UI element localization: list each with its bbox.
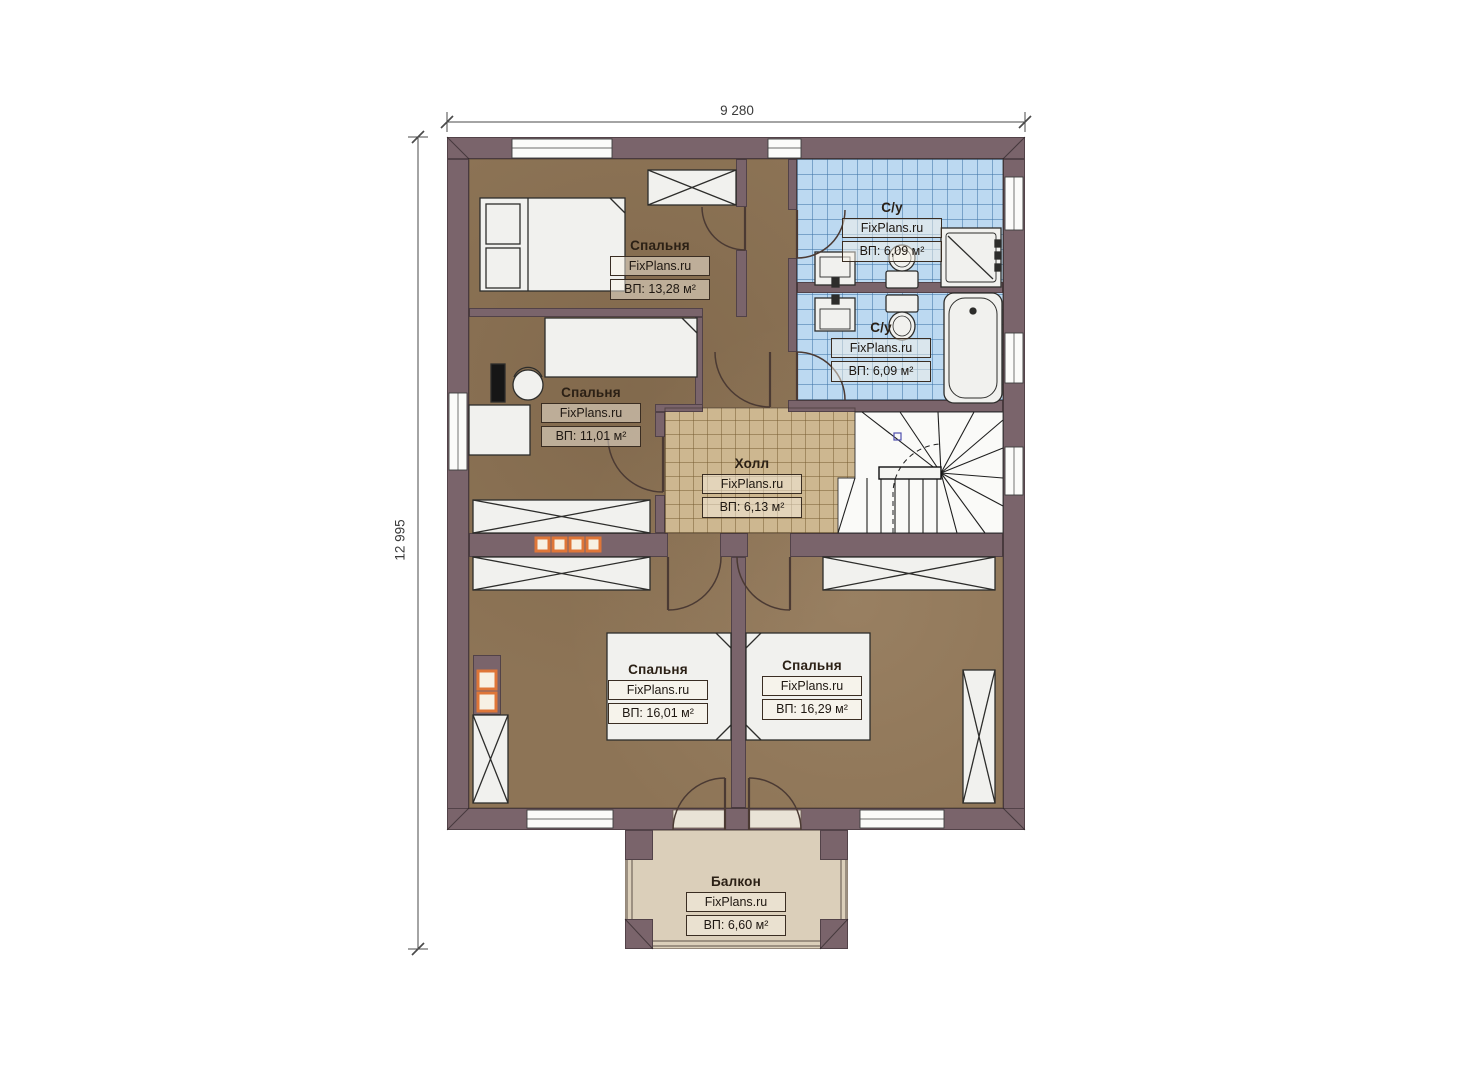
- brand-watermark: FixPlans.ru: [541, 403, 641, 423]
- room-label-bedroom-mid-left: Спальня FixPlans.ru ВП: 11,01 м²: [541, 385, 641, 447]
- room-label-bathroom-bottom: С/у FixPlans.ru ВП: 6,09 м²: [831, 320, 931, 382]
- room-label-bedroom-bottom-left: Спальня FixPlans.ru ВП: 16,01 м²: [608, 662, 708, 724]
- room-name: Холл: [702, 456, 802, 471]
- room-label-bedroom-bottom-right: Спальня FixPlans.ru ВП: 16,29 м²: [762, 658, 862, 720]
- brand-watermark: FixPlans.ru: [702, 474, 802, 494]
- wall: [447, 137, 1025, 159]
- balcony-post: [625, 919, 653, 949]
- wall: [655, 412, 665, 437]
- room-name: С/у: [842, 200, 942, 215]
- room-label-bedroom-top-left: Спальня FixPlans.ru ВП: 13,28 м²: [610, 238, 710, 300]
- room-area: ВП: 6,60 м²: [686, 915, 786, 935]
- wall: [469, 308, 703, 317]
- room-label-hall: Холл FixPlans.ru ВП: 6,13 м²: [702, 456, 802, 518]
- balcony-post: [625, 830, 653, 860]
- brand-watermark: FixPlans.ru: [842, 218, 942, 238]
- room-label-balcony: Балкон FixPlans.ru ВП: 6,60 м²: [686, 874, 786, 936]
- brand-watermark: FixPlans.ru: [762, 676, 862, 696]
- dimension-height-label: 12 995: [393, 519, 408, 560]
- room-name: Балкон: [686, 874, 786, 889]
- wall: [473, 655, 501, 715]
- brand-watermark: FixPlans.ru: [831, 338, 931, 358]
- room-area: ВП: 6,09 м²: [842, 241, 942, 261]
- room-name: Спальня: [608, 662, 708, 677]
- room-label-bathroom-top: С/у FixPlans.ru ВП: 6,09 м²: [842, 200, 942, 262]
- wall: [731, 557, 746, 808]
- balcony-post: [820, 919, 848, 949]
- wall: [695, 317, 703, 412]
- room-area: ВП: 16,01 м²: [608, 703, 708, 723]
- room-area: ВП: 11,01 м²: [541, 426, 641, 446]
- brand-watermark: FixPlans.ru: [610, 256, 710, 276]
- wall: [655, 495, 665, 533]
- wall: [447, 808, 1025, 830]
- dimension-width-label: 9 280: [720, 103, 754, 118]
- wall: [1003, 159, 1025, 830]
- wall: [788, 400, 1003, 412]
- wall: [788, 258, 797, 352]
- wall: [797, 282, 1003, 293]
- room-area: ВП: 13,28 м²: [610, 279, 710, 299]
- wall: [736, 159, 747, 207]
- room-name: Спальня: [610, 238, 710, 253]
- room-area: ВП: 16,29 м²: [762, 699, 862, 719]
- wall: [720, 533, 748, 557]
- room-name: Спальня: [762, 658, 862, 673]
- room-name: С/у: [831, 320, 931, 335]
- wall: [788, 159, 797, 210]
- room-area: ВП: 6,09 м²: [831, 361, 931, 381]
- floor-plan: 9 280 12 995 Спальня FixPlans.ru ВП: 13,…: [0, 0, 1473, 1080]
- wall: [790, 533, 1003, 557]
- wall: [469, 533, 668, 557]
- room-area: ВП: 6,13 м²: [702, 497, 802, 517]
- wall: [736, 250, 747, 317]
- brand-watermark: FixPlans.ru: [608, 680, 708, 700]
- wall: [447, 159, 469, 830]
- balcony-post: [820, 830, 848, 860]
- wall: [655, 404, 703, 412]
- room-name: Спальня: [541, 385, 641, 400]
- brand-watermark: FixPlans.ru: [686, 892, 786, 912]
